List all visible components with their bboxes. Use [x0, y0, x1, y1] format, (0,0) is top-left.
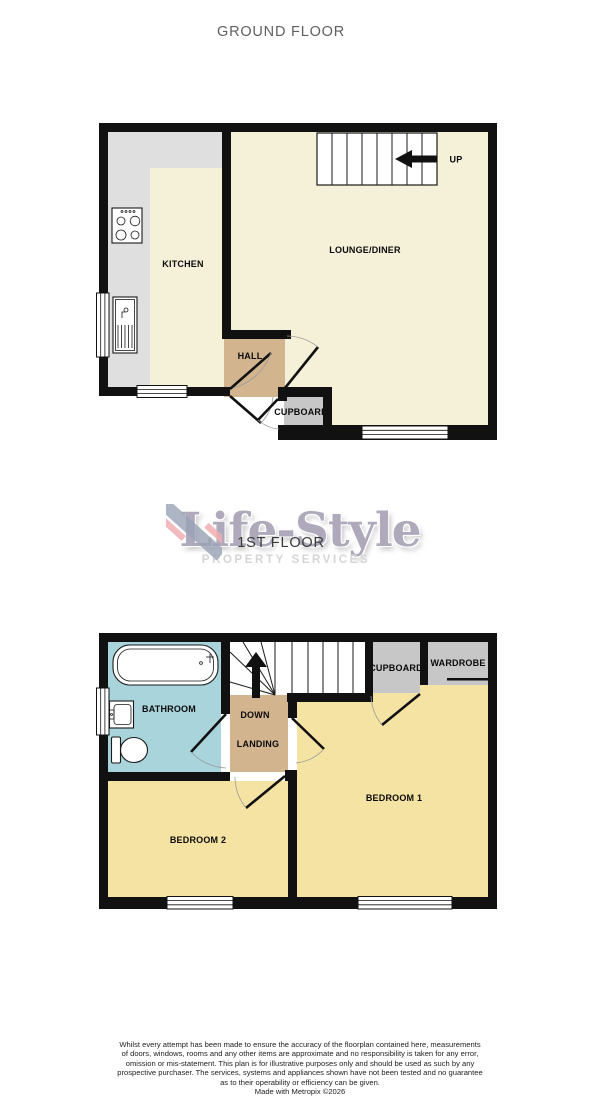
bedroom1-label: BEDROOM 1	[366, 793, 422, 803]
kitchen-sink	[113, 297, 137, 353]
toilet	[112, 737, 148, 763]
bedroom1-window	[358, 897, 452, 910]
cupboard-label: CUPBOARD	[274, 407, 328, 417]
kitchen-side-window	[97, 293, 110, 357]
stairwell-floor	[230, 642, 365, 695]
landing-label: LANDING	[237, 739, 279, 749]
first-floor-plan: CUPBOARD	[95, 630, 505, 915]
stairs-up-label: UP	[450, 155, 463, 165]
disclaimer: Whilst every attempt has been made to en…	[0, 1040, 600, 1096]
hall-label: HALL	[238, 351, 263, 361]
landing-floor	[230, 695, 288, 772]
floorplan-page: GROUND FLOOR CUPBOARD	[0, 0, 600, 1096]
stairs-down-label: DOWN	[240, 710, 269, 720]
bathroom-side-window	[97, 688, 110, 735]
lounge-bottom-window	[362, 426, 448, 439]
bathtub	[113, 645, 218, 685]
cupboard1f-label: CUPBOARD	[369, 663, 423, 673]
kitchen-label: KITCHEN	[162, 259, 203, 269]
kitchen-bottom-window	[137, 386, 187, 398]
bedroom2-label: BEDROOM 2	[170, 835, 226, 845]
disclaimer-line: prospective purchaser. The services, sys…	[0, 1068, 600, 1077]
bedroom2-window	[167, 897, 233, 910]
ground-floor-plan: CUPBOARD	[95, 120, 505, 445]
disclaimer-line: Whilst every attempt has been made to en…	[0, 1040, 600, 1049]
bathroom-sink	[109, 701, 134, 728]
kitchen-counter-top	[108, 132, 222, 168]
brand-tagline: PROPERTY SERVICES	[0, 554, 586, 566]
metropix-credit: Made with Metropix ©2026	[0, 1087, 600, 1096]
lounge-diner-label: LOUNGE/DINER	[329, 245, 401, 255]
disclaimer-line: of doors, windows, rooms and any other i…	[0, 1049, 600, 1058]
cooker	[112, 208, 142, 243]
ground-floor-heading: GROUND FLOOR	[0, 24, 562, 40]
disclaimer-line: as to their operability or efficiency ca…	[0, 1078, 600, 1087]
wardrobe-label: WARDROBE	[430, 658, 485, 668]
first-floor-heading: 1ST FLOOR	[0, 535, 562, 551]
bathroom-label: BATHROOM	[142, 704, 196, 714]
disclaimer-line: omission or mis-statement. This plan is …	[0, 1059, 600, 1068]
